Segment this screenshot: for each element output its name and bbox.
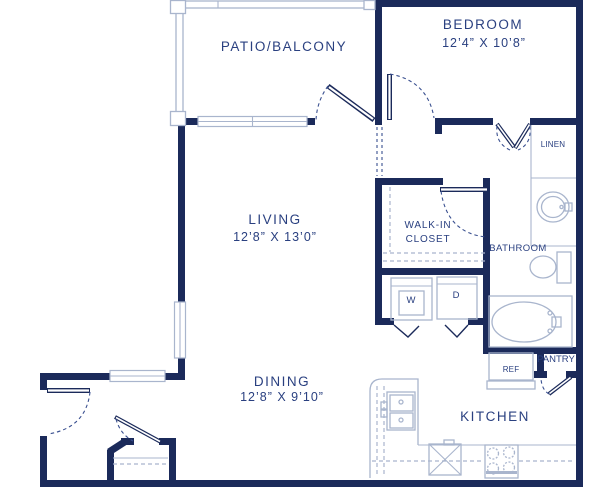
wall-pantry-foot-left	[534, 371, 547, 378]
label-pantry: PANTRY	[537, 354, 575, 365]
bathtub	[489, 296, 572, 347]
label-bedroom: BEDROOM	[443, 17, 523, 32]
label-bathroom: BATHROOM	[489, 243, 546, 254]
railing-post-right	[364, 1, 375, 10]
window-living-north	[198, 117, 307, 127]
bathroom-sink	[537, 192, 572, 222]
entry-door	[47, 391, 90, 435]
label-dining: DINING	[254, 374, 310, 389]
label-living: LIVING	[248, 212, 301, 227]
bath-hall-doors	[497, 124, 530, 150]
wall-laundry-stub-left	[382, 318, 394, 325]
label-patio: PATIO/BALCONY	[221, 39, 347, 54]
label-washer: W	[407, 295, 416, 306]
stove	[485, 445, 518, 478]
toilet	[530, 252, 571, 283]
label-dryer: D	[453, 290, 460, 301]
label-linen: LINEN	[541, 140, 566, 149]
label-kitchen: KITCHEN	[460, 409, 530, 424]
wall-pantry-foot-right	[566, 371, 576, 378]
wall-closet-north	[375, 178, 443, 185]
labels: PATIO/BALCONY BEDROOM 12’4” X 10’8” LIVI…	[221, 17, 576, 424]
wall-bedroom-door-stub	[435, 125, 442, 134]
wall-bedroom-south-left	[435, 118, 493, 125]
window-dining-west	[110, 371, 165, 382]
wall-patio-bedroom-divider	[375, 0, 382, 125]
label-closet: CLOSET	[406, 234, 451, 245]
wall-bedroom-top	[372, 0, 583, 7]
label-dining-dims: 12’8” X 9’10”	[240, 390, 324, 404]
wall-laundry-north	[375, 268, 490, 275]
wall-entry-jamb-bottom	[40, 436, 47, 487]
railing-post-bottom-left	[171, 112, 186, 126]
railing-left	[176, 12, 183, 112]
kitchen-sink	[381, 392, 415, 430]
laundry-bifold-doors	[394, 325, 468, 337]
label-walk-in: WALK-IN	[405, 220, 452, 231]
patio-door	[316, 86, 374, 120]
floor-plan-svg: PATIO/BALCONY BEDROOM 12’4” X 10’8” LIVI…	[0, 0, 600, 490]
window-living-west	[175, 302, 186, 358]
label-bedroom-dims: 12’4” X 10’8”	[442, 36, 526, 50]
wall-coat-closet-west	[107, 450, 114, 480]
wall-linen-top	[530, 118, 576, 125]
patio-railing	[171, 1, 376, 126]
wall-coat-closet-east	[169, 438, 176, 480]
floor-plan: PATIO/BALCONY BEDROOM 12’4” X 10’8” LIVI…	[0, 0, 600, 490]
bedroom-door	[390, 74, 435, 120]
pantry-door	[541, 377, 571, 394]
label-ref: REF	[503, 365, 520, 374]
label-living-dims: 12’8” X 13’0”	[233, 230, 317, 244]
fixtures	[370, 125, 576, 478]
windows	[110, 117, 307, 382]
wall-right	[576, 0, 583, 487]
wall-laundry-west	[375, 185, 382, 325]
wall-bottom	[40, 480, 583, 487]
wall-coat-closet-top-left	[121, 438, 134, 445]
linen-closet	[531, 125, 576, 178]
railing-top	[185, 1, 365, 8]
railing-post-top-left	[171, 1, 186, 14]
